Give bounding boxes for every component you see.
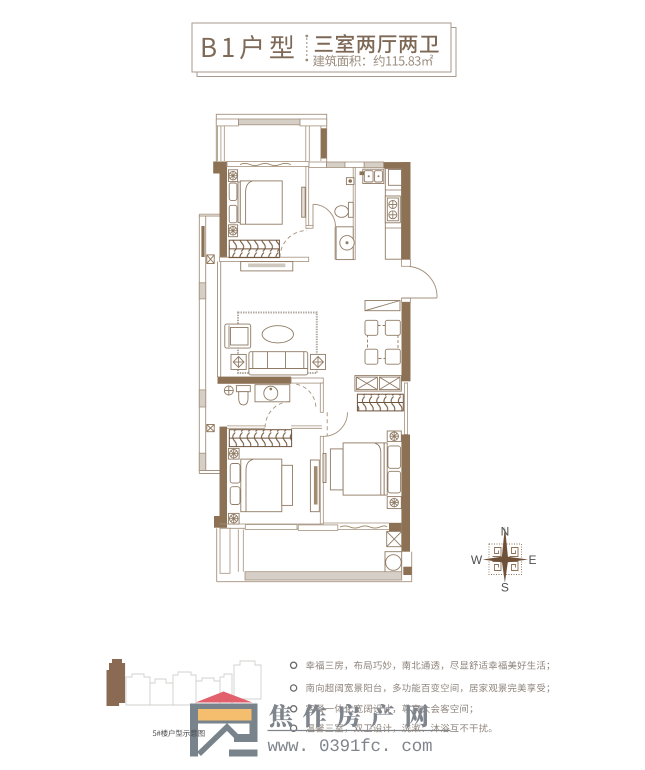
- svg-text:W: W: [471, 553, 483, 567]
- svg-text:S: S: [501, 581, 509, 595]
- svg-text:N: N: [501, 525, 510, 539]
- svg-text:E: E: [528, 553, 536, 567]
